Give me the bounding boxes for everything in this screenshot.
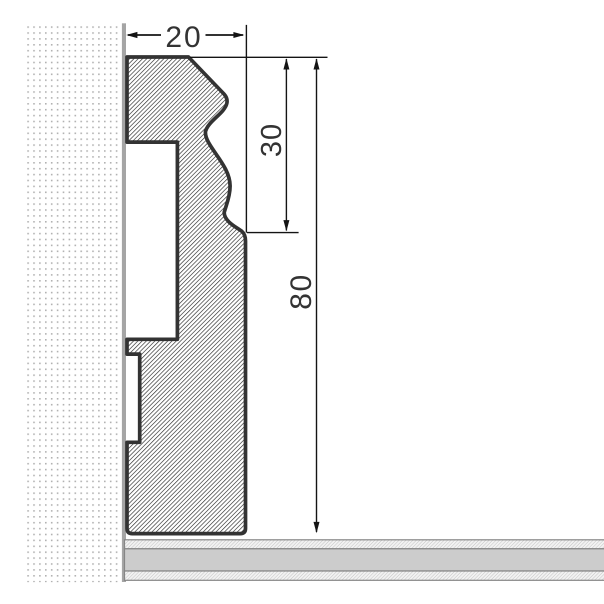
svg-text:30: 30 xyxy=(256,123,288,157)
svg-text:20: 20 xyxy=(165,21,202,54)
svg-text:80: 80 xyxy=(285,273,318,309)
